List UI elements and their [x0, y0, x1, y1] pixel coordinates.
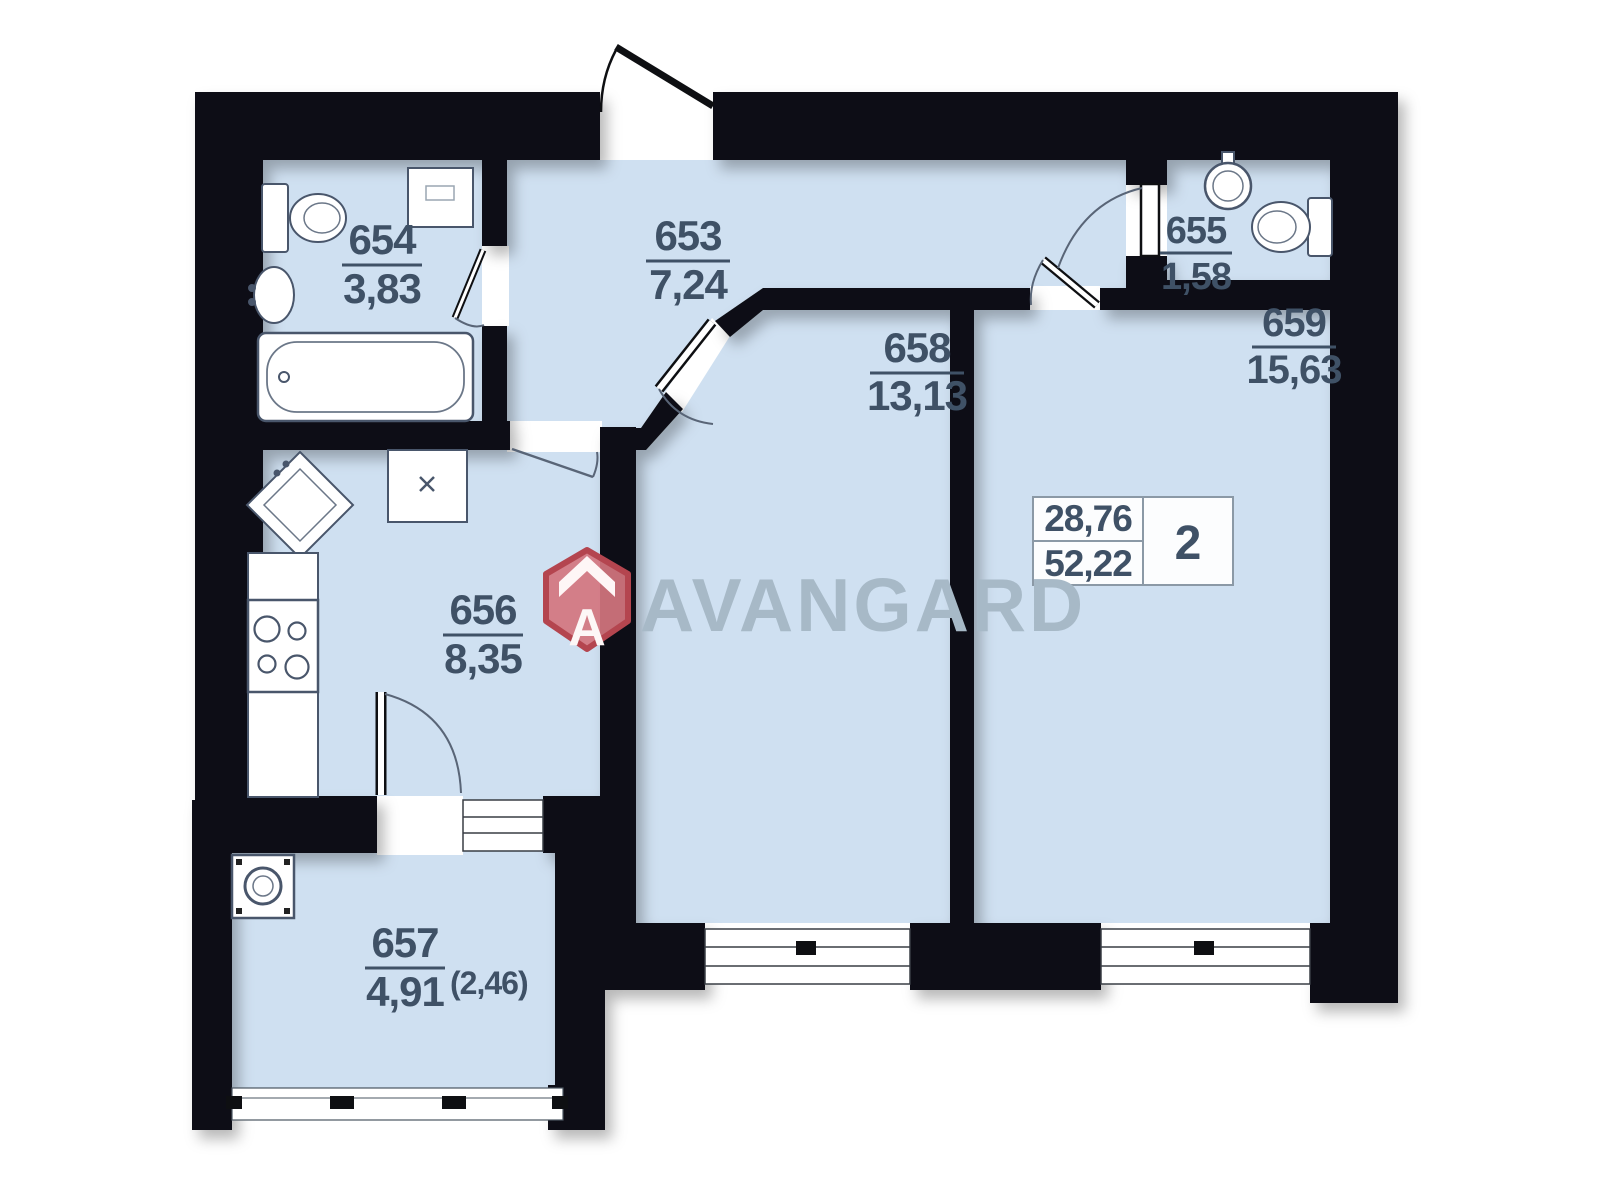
- room-area: 4,91: [366, 968, 444, 1015]
- room-area: 13,13: [867, 372, 967, 419]
- label-room-653: 653 7,24: [646, 212, 730, 308]
- bathtub-icon: [258, 333, 473, 421]
- wall-bottom-pier: [910, 923, 1101, 990]
- room-number: 659: [1262, 301, 1326, 345]
- label-room-654: 654 3,83: [342, 216, 422, 312]
- wall-hall-bottom-a: [763, 288, 1030, 310]
- logo-icon-letter: A: [568, 599, 606, 657]
- room-number: 656: [449, 586, 516, 633]
- stove-icon: [248, 600, 318, 692]
- label-room-656: 656 8,35: [443, 586, 523, 682]
- wall-kitchen-balcony-left: [195, 796, 377, 853]
- wall-balcony-right: [555, 796, 605, 1130]
- room-area-secondary: (2,46): [450, 965, 528, 1001]
- counter-icon: [388, 450, 467, 522]
- toilet-icon-655: [1252, 198, 1332, 256]
- living-area-value: 28,76: [1044, 498, 1132, 539]
- floor-plan-page: 653 7,24 654 3,83 655 1,58 656 8,35 657 …: [0, 0, 1600, 1200]
- room-area: 3,83: [343, 265, 421, 312]
- wall-bath-right-upper: [482, 160, 507, 246]
- cabinet-icon-654: [408, 168, 473, 227]
- window-kitchen-balcony: [463, 800, 543, 851]
- room-area: 8,35: [444, 635, 522, 682]
- wall-bottom-a: [600, 923, 705, 990]
- logo-wordmark: AVANGARD: [640, 563, 1086, 647]
- room-number: 655: [1166, 210, 1227, 252]
- bathroom-door-opening: [482, 246, 509, 326]
- window-room659: [1101, 929, 1310, 984]
- room-area: 7,24: [649, 261, 728, 308]
- wall-kitchen-room658: [600, 427, 636, 923]
- room-number: 653: [654, 212, 721, 259]
- wall-wc-left-upper: [1126, 160, 1167, 185]
- window-room658: [705, 929, 910, 984]
- room-number: 658: [883, 324, 951, 371]
- rooms-count-value: 2: [1175, 517, 1202, 570]
- room-number: 657: [371, 919, 438, 966]
- room-area: 1,58: [1161, 256, 1231, 298]
- label-room-655: 655 1,58: [1160, 210, 1232, 298]
- wall-top-right: [713, 92, 1345, 160]
- washing-machine-icon: [232, 855, 294, 918]
- wall-bottom-corner: [1310, 923, 1398, 1003]
- wall-bath-right-lower: [482, 326, 507, 425]
- balcony-rail: [226, 1088, 568, 1120]
- wall-right: [1330, 92, 1398, 994]
- room-area: 15,63: [1246, 348, 1341, 392]
- kitchen-passage-opening: [507, 421, 602, 452]
- balcony-door-opening: [377, 796, 463, 855]
- entrance-door: [601, 47, 713, 112]
- floor-plan-drawing: 653 7,24 654 3,83 655 1,58 656 8,35 657 …: [0, 0, 1600, 1200]
- room-number: 654: [348, 216, 417, 263]
- wall-bath-bottom: [195, 421, 510, 450]
